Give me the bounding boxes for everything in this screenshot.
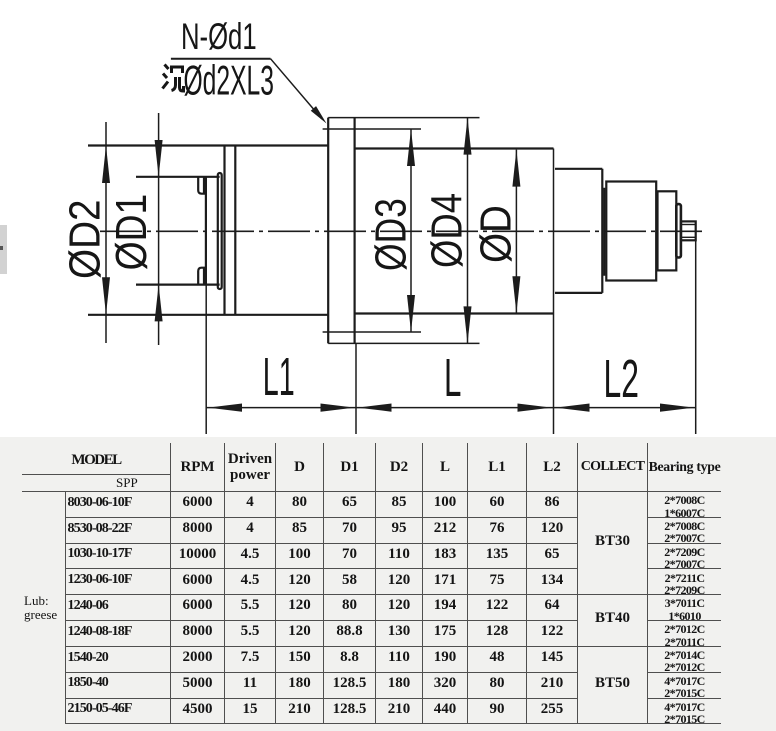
svg-text:ØD2: ØD2 <box>60 200 109 279</box>
svg-text:ØD3: ØD3 <box>367 198 415 271</box>
svg-text:L: L <box>444 348 461 408</box>
svg-text:L2: L2 <box>604 349 639 409</box>
svg-text:N-Ød1: N-Ød1 <box>181 15 257 57</box>
svg-text:ØD1: ØD1 <box>106 194 156 271</box>
svg-text:Ød2XL3: Ød2XL3 <box>184 58 274 104</box>
svg-text:ØD: ØD <box>471 205 520 263</box>
svg-text:ØD4: ØD4 <box>421 193 471 268</box>
svg-text:L1: L1 <box>263 348 295 408</box>
